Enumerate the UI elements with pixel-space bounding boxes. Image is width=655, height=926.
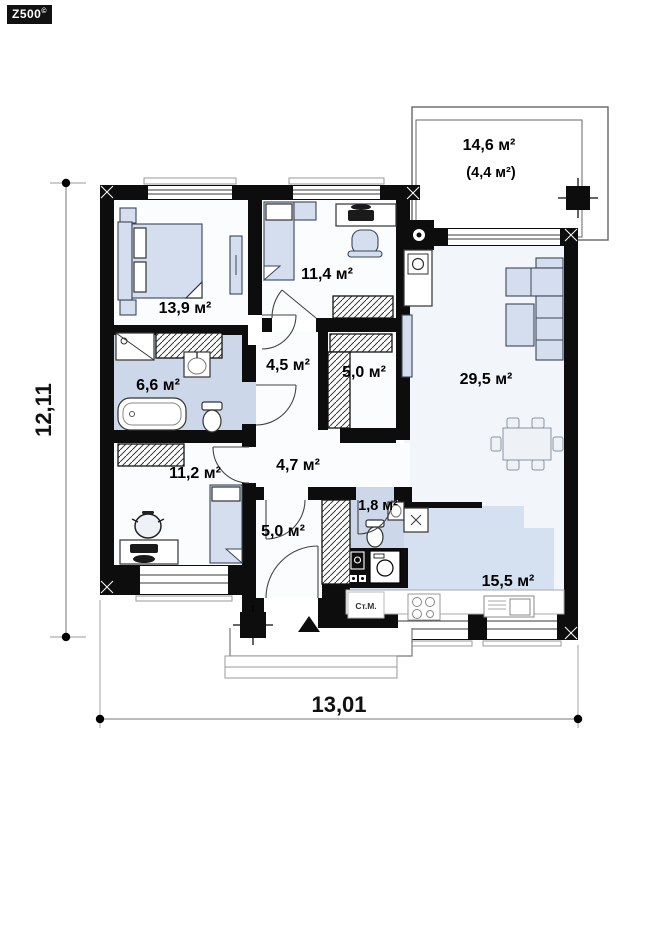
- kitchen-sink-icon: [484, 596, 534, 617]
- closet-shelf-top-icon: [330, 334, 392, 352]
- wardrobe-bedroom-3-icon: [118, 444, 184, 466]
- area-label-corridor: 4,7 м²: [276, 457, 320, 474]
- area-label-entry: 5,0 м²: [261, 523, 305, 540]
- coffee-table-icon: [506, 304, 534, 346]
- washing-machine-label: Ст.М.: [355, 601, 376, 611]
- pillow-icon: [212, 487, 240, 501]
- tv-icon: [402, 315, 412, 377]
- terrace-door: [448, 229, 560, 245]
- floor-plan: 14,6 м² (4,4 м²) 13,9 м² 11,4 м² 6,6 м² …: [0, 0, 655, 926]
- office-chair-icon: [352, 230, 378, 254]
- nightstand-icon: [120, 208, 136, 223]
- dimension-height: 12,11: [31, 179, 86, 641]
- shelf-icon: [294, 202, 316, 220]
- vent-shaft-icon: [404, 508, 428, 532]
- pillow-icon: [266, 204, 292, 220]
- window-bedroom-2: [293, 186, 380, 199]
- window-bedroom-1: [148, 186, 232, 199]
- corridor-floor: [242, 443, 410, 487]
- nightstand-icon: [120, 300, 136, 315]
- headboard-icon: [118, 222, 132, 300]
- area-label-wc: 1,8 м²: [358, 498, 398, 514]
- pillow-icon: [134, 228, 146, 258]
- area-label-bedroom-2: 11,4 м²: [301, 266, 353, 283]
- washing-machine-icon: [370, 551, 400, 583]
- boiler-icon: [404, 250, 432, 306]
- window-bedroom-3: [140, 566, 228, 594]
- area-label-bathroom: 6,6 м²: [136, 377, 180, 394]
- stove-icon: [408, 594, 440, 620]
- area-label-terrace-secondary: (4,4 м²): [466, 165, 516, 181]
- porch-column: [240, 612, 266, 638]
- width-dimension-label: 13,01: [311, 692, 366, 717]
- wardrobe-entry-icon: [322, 500, 350, 584]
- terrace-column: [566, 186, 590, 210]
- toilet-icon: [202, 402, 222, 432]
- pillow-icon: [134, 262, 146, 292]
- area-label-bedroom-3: 11,2 м²: [169, 465, 221, 482]
- porch-step: [225, 656, 397, 667]
- area-label-terrace: 14,6 м²: [463, 137, 516, 154]
- printer-icon: [348, 210, 374, 221]
- dining-table-icon: [503, 428, 551, 460]
- porch-step: [225, 667, 397, 678]
- height-dimension-label: 12,11: [31, 383, 56, 437]
- wardrobe-bedroom-2-icon: [333, 296, 393, 318]
- area-label-closet: 5,0 м²: [342, 364, 386, 381]
- area-label-bedroom-1: 13,9 м²: [159, 300, 212, 317]
- area-label-hall: 4,5 м²: [266, 357, 310, 374]
- floor-plan-page: Z500©: [0, 0, 655, 926]
- area-label-living: 29,5 м²: [460, 371, 513, 388]
- area-label-kitchen: 15,5 м²: [482, 573, 535, 590]
